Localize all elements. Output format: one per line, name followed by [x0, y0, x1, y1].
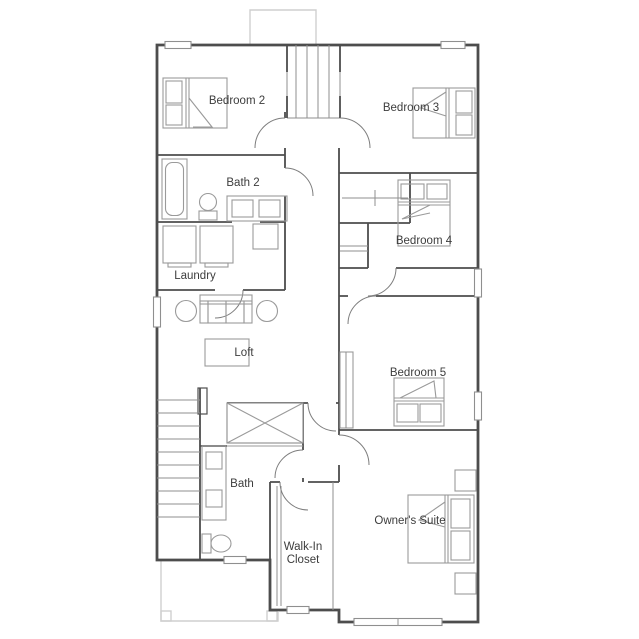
room-label-bedroom3: Bedroom 3 — [383, 102, 439, 114]
room-label-bath2: Bath 2 — [226, 177, 259, 189]
laundry-washer-icon — [163, 226, 196, 267]
floor-plan-drawing: Bedroom 2 Bedroom 3 Bath 2 Bedroom 4 Lau… — [0, 0, 639, 639]
roof-outline-top-bump — [250, 10, 316, 45]
room-label-bath: Bath — [230, 478, 254, 490]
bath2-tub-icon — [162, 159, 187, 219]
bedroom5-closet-icon — [340, 352, 353, 428]
hall-bath-vanity-icon — [202, 446, 226, 520]
upper-stairwell — [287, 45, 340, 118]
porch-outline-bottom-left — [161, 561, 278, 621]
bedroom5-bed-icon — [394, 378, 444, 426]
room-label-loft: Loft — [234, 347, 254, 359]
room-label-owners-suite: Owner's Suite — [374, 515, 445, 527]
room-label-bedroom5: Bedroom 5 — [390, 367, 446, 379]
bedroom4-closet-shelves — [340, 246, 368, 251]
owners-suite-bed-icon — [408, 495, 474, 563]
staircase — [157, 400, 200, 517]
owners-suite-nightstand-icon — [455, 470, 476, 594]
exterior-walls — [157, 45, 478, 622]
hall-bath-toilet-icon — [202, 534, 231, 553]
floor-plan-page: Bedroom 2 Bedroom 3 Bath 2 Bedroom 4 Lau… — [0, 0, 639, 639]
room-label-laundry: Laundry — [174, 270, 216, 282]
room-label-bedroom2: Bedroom 2 — [209, 95, 265, 107]
room-label-walkin-closet: Walk-InCloset — [284, 541, 323, 566]
room-label-bedroom4: Bedroom 4 — [396, 235, 453, 247]
laundry-dryer-icon — [200, 226, 233, 267]
windows — [154, 42, 482, 626]
loft-sofa-icon — [200, 295, 252, 323]
bath2-toilet-icon — [199, 194, 217, 221]
hall-bath-shower-icon — [227, 403, 303, 446]
